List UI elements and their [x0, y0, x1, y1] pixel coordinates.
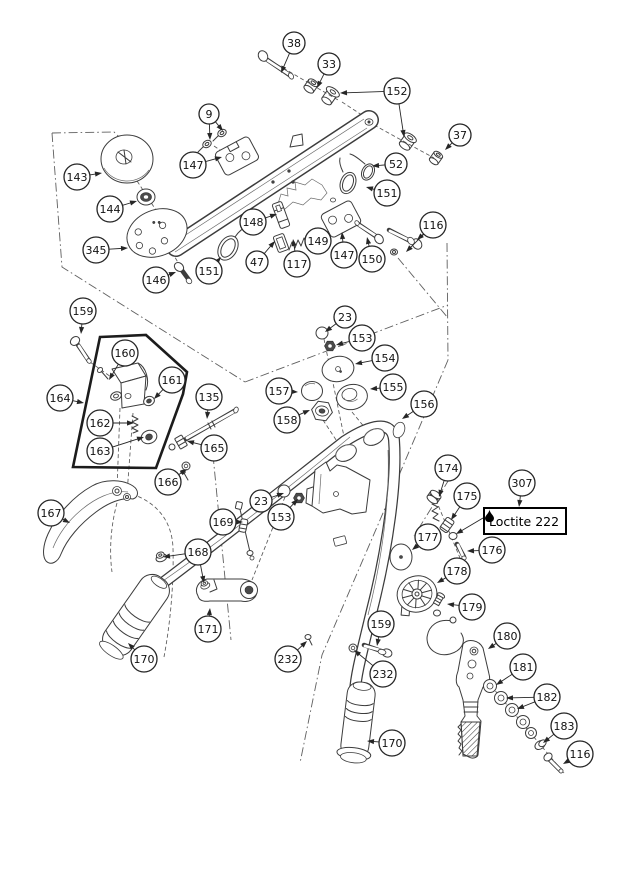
bolt-159-left [69, 335, 93, 364]
svg-text:37: 37 [453, 129, 467, 142]
svg-text:143: 143 [67, 171, 88, 184]
callout-155: 155 [380, 374, 406, 400]
bushing-37 [428, 150, 444, 166]
svg-text:38: 38 [287, 37, 301, 50]
callout-171: 171 [195, 616, 221, 642]
svg-text:183: 183 [554, 720, 575, 733]
callout-161: 161 [159, 367, 185, 393]
svg-text:181: 181 [513, 661, 534, 674]
svg-text:168: 168 [188, 546, 209, 559]
svg-text:164: 164 [50, 392, 71, 405]
callout-147b: 147 [331, 242, 357, 268]
callout-170a: 170 [131, 646, 157, 672]
svg-text:170: 170 [382, 737, 403, 750]
nut-158 [310, 401, 333, 422]
callout-52: 52 [385, 153, 407, 175]
svg-text:23: 23 [254, 495, 268, 508]
svg-text:147: 147 [334, 249, 355, 262]
bushing-33 [303, 77, 320, 94]
bolt-159-bottom [364, 645, 393, 658]
callout-154: 154 [372, 345, 398, 371]
callout-147a: 147 [180, 152, 206, 178]
cable-tie-151-2 [214, 227, 247, 264]
svg-text:163: 163 [90, 445, 111, 458]
diagram-artwork: 3833152937147521511431443451461511484711… [0, 0, 620, 876]
callout-148: 148 [240, 209, 266, 235]
callout-23b: 23 [250, 490, 272, 512]
spring-162 [132, 416, 138, 433]
svg-text:52: 52 [389, 158, 403, 171]
clip-47 [273, 233, 289, 253]
screw-232-1 [305, 635, 312, 646]
throttle-trigger-180 [456, 641, 489, 759]
cable-tie-151-1 [337, 158, 359, 196]
bolt-116-bottom [542, 751, 563, 773]
callout-169: 169 [210, 509, 236, 535]
svg-text:159: 159 [73, 305, 94, 318]
callout-144: 144 [97, 196, 123, 222]
svg-text:148: 148 [243, 216, 264, 229]
callout-47: 47 [246, 251, 268, 273]
callout-175: 175 [454, 483, 480, 509]
callout-307: 307 [509, 470, 535, 496]
callout-177: 177 [415, 524, 441, 550]
svg-text:117: 117 [287, 258, 308, 271]
svg-text:171: 171 [198, 623, 219, 636]
callout-158: 158 [274, 407, 300, 433]
svg-text:151: 151 [199, 265, 220, 278]
sleeve-175 [439, 517, 454, 534]
callout-345: 345 [83, 237, 109, 263]
callout-9: 9 [199, 104, 219, 124]
callout-180: 180 [494, 623, 520, 649]
callout-159a: 159 [70, 298, 96, 324]
cable-clip [333, 536, 347, 547]
parts-diagram: 3833152937147521511431443451461511484711… [0, 0, 620, 876]
disc-177 [390, 544, 412, 570]
callout-150: 150 [359, 246, 385, 272]
bolt-146 [173, 261, 193, 285]
svg-text:47: 47 [250, 256, 264, 269]
callout-182: 182 [534, 684, 560, 710]
callout-176: 176 [479, 537, 505, 563]
svg-text:149: 149 [308, 235, 329, 248]
svg-text:146: 146 [146, 274, 167, 287]
svg-text:174: 174 [438, 462, 459, 475]
screw-149 [331, 198, 336, 202]
grip-170-right [336, 680, 380, 765]
clamp-plate [306, 462, 370, 514]
svg-text:155: 155 [383, 381, 404, 394]
svg-text:147: 147 [183, 159, 204, 172]
callout-151b: 151 [196, 258, 222, 284]
spring-175 [432, 504, 439, 521]
callout-135: 135 [196, 384, 222, 410]
callout-157: 157 [266, 378, 292, 404]
svg-text:159: 159 [371, 618, 392, 631]
svg-text:152: 152 [387, 85, 408, 98]
cable-loop [427, 617, 463, 655]
flanged-bushing-152-2 [397, 131, 418, 152]
washer-disc-143 [101, 135, 153, 183]
grommet-144 [137, 189, 155, 205]
callout-179: 179 [459, 594, 485, 620]
svg-text:162: 162 [90, 417, 111, 430]
svg-text:177: 177 [418, 531, 439, 544]
mount-plate-345 [120, 200, 195, 266]
callout-168: 168 [185, 539, 211, 565]
svg-text:157: 157 [269, 385, 290, 398]
svg-text:170: 170 [134, 653, 155, 666]
svg-text:178: 178 [447, 565, 468, 578]
washer-stack [484, 680, 537, 739]
svg-text:160: 160 [115, 347, 136, 360]
svg-text:153: 153 [271, 511, 292, 524]
callout-153a: 153 [349, 325, 375, 351]
callout-178: 178 [444, 558, 470, 584]
svg-text:135: 135 [199, 391, 220, 404]
svg-text:153: 153 [352, 332, 373, 345]
svg-text:307: 307 [512, 477, 533, 490]
svg-text:165: 165 [204, 442, 225, 455]
svg-text:116: 116 [423, 219, 444, 232]
callout-162: 162 [87, 410, 113, 436]
loctite-text: Loctite 222 [489, 514, 559, 529]
callout-146: 146 [143, 267, 169, 293]
locknut-153-top [325, 341, 336, 351]
callout-33: 33 [318, 53, 340, 75]
droplet-icon [485, 509, 494, 522]
callout-166: 166 [155, 469, 181, 495]
washer-154 [320, 353, 356, 384]
svg-text:9: 9 [206, 108, 213, 121]
svg-text:232: 232 [278, 653, 299, 666]
svg-text:23: 23 [338, 311, 352, 324]
callout-117: 117 [284, 251, 310, 277]
svg-text:345: 345 [86, 244, 107, 257]
callout-160: 160 [112, 340, 138, 366]
clamp-plate-147-1 [214, 136, 260, 177]
svg-text:161: 161 [162, 374, 183, 387]
svg-text:156: 156 [414, 398, 435, 411]
callout-163: 163 [87, 438, 113, 464]
callout-153b: 153 [268, 504, 294, 530]
callout-149: 149 [305, 228, 331, 254]
callout-164: 164 [47, 385, 73, 411]
callout-143: 143 [64, 164, 90, 190]
svg-text:158: 158 [277, 414, 298, 427]
callout-116b: 116 [567, 741, 593, 767]
callout-167: 167 [38, 500, 64, 526]
svg-text:154: 154 [375, 352, 396, 365]
callout-159b: 159 [368, 611, 394, 637]
svg-text:179: 179 [462, 601, 483, 614]
callout-170b: 170 [379, 730, 405, 756]
svg-text:166: 166 [158, 476, 179, 489]
washer-155 [334, 382, 370, 413]
svg-text:33: 33 [322, 58, 336, 71]
callout-151a: 151 [374, 180, 400, 206]
svg-text:167: 167 [41, 507, 62, 520]
trigger-grip-pad [461, 722, 480, 756]
bolt-38 [256, 49, 294, 80]
callout-116a: 116 [420, 212, 446, 238]
svg-text:151: 151 [377, 187, 398, 200]
callout-232b: 232 [370, 661, 396, 687]
callout-38: 38 [283, 32, 305, 54]
callout-152: 152 [384, 78, 410, 104]
ball-23-top [316, 327, 328, 339]
callout-181: 181 [510, 654, 536, 680]
callout-156: 156 [411, 391, 437, 417]
callout-165: 165 [201, 435, 227, 461]
callout-174: 174 [435, 455, 461, 481]
callout-232a: 232 [275, 646, 301, 672]
knob-157 [302, 382, 323, 401]
svg-text:176: 176 [482, 544, 503, 557]
callout-37: 37 [449, 124, 471, 146]
screw-160 [96, 367, 108, 379]
bar-tab [290, 134, 303, 147]
callout-23a: 23 [334, 306, 356, 328]
svg-text:180: 180 [497, 630, 518, 643]
svg-text:150: 150 [362, 253, 383, 266]
loctite-label: Loctite 222 [483, 507, 567, 535]
svg-text:182: 182 [537, 691, 558, 704]
svg-text:116: 116 [570, 748, 591, 761]
svg-text:175: 175 [457, 490, 478, 503]
svg-text:169: 169 [213, 516, 234, 529]
svg-text:232: 232 [373, 668, 394, 681]
svg-text:144: 144 [100, 203, 121, 216]
callout-183: 183 [551, 713, 577, 739]
flanged-bushing-152-1 [319, 85, 341, 108]
